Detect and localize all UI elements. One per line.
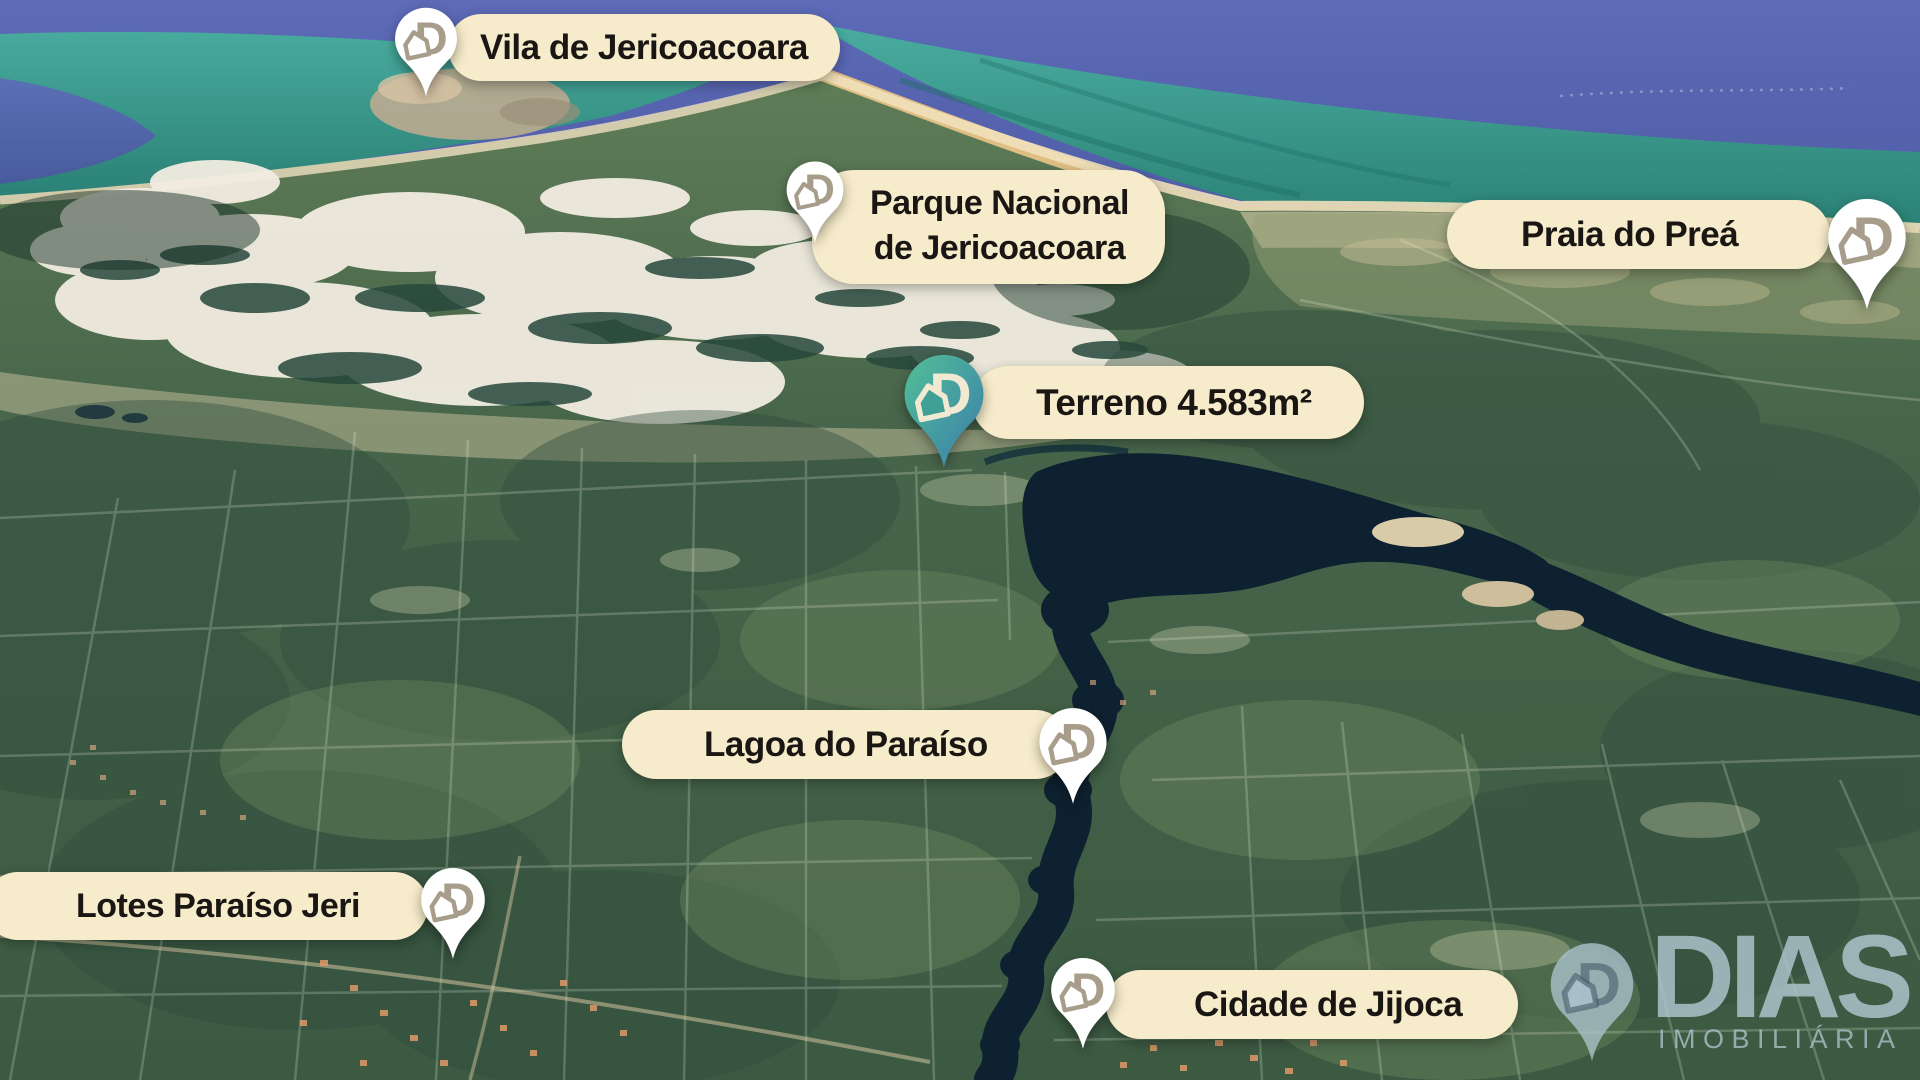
marker-label: Praia do Preá	[1447, 200, 1830, 269]
brand-name: DIAS	[1650, 918, 1908, 1036]
dias-map-pin-icon[interactable]	[1822, 194, 1912, 313]
marker-label: Parque Nacional de Jericoacoara	[812, 170, 1165, 284]
marker-label-line1: Parque Nacional	[870, 181, 1129, 226]
terreno-map-pin-icon[interactable]	[898, 350, 990, 471]
marker-label: Lagoa do Paraíso	[622, 710, 1070, 779]
brand-tagline: IMOBILIÁRIA	[1658, 1026, 1903, 1053]
dias-map-pin-icon[interactable]	[390, 4, 462, 99]
marker-label-line2: de Jericoacoara	[870, 226, 1129, 271]
dias-map-pin-icon[interactable]	[416, 864, 490, 962]
marker-label: Terreno 4.583m²	[972, 366, 1364, 439]
dias-logo-pin-icon	[1544, 938, 1640, 1065]
dias-map-pin-icon[interactable]	[1046, 954, 1120, 1052]
dias-map-pin-icon[interactable]	[1034, 704, 1112, 807]
marker-label: Lotes Paraíso Jeri	[0, 872, 428, 940]
marker-label: Vila de Jericoacoara	[448, 14, 840, 81]
map-stage: D D D	[0, 0, 1920, 1080]
marker-label: Cidade de Jijoca	[1106, 970, 1518, 1039]
dias-map-pin-icon[interactable]	[782, 158, 848, 245]
